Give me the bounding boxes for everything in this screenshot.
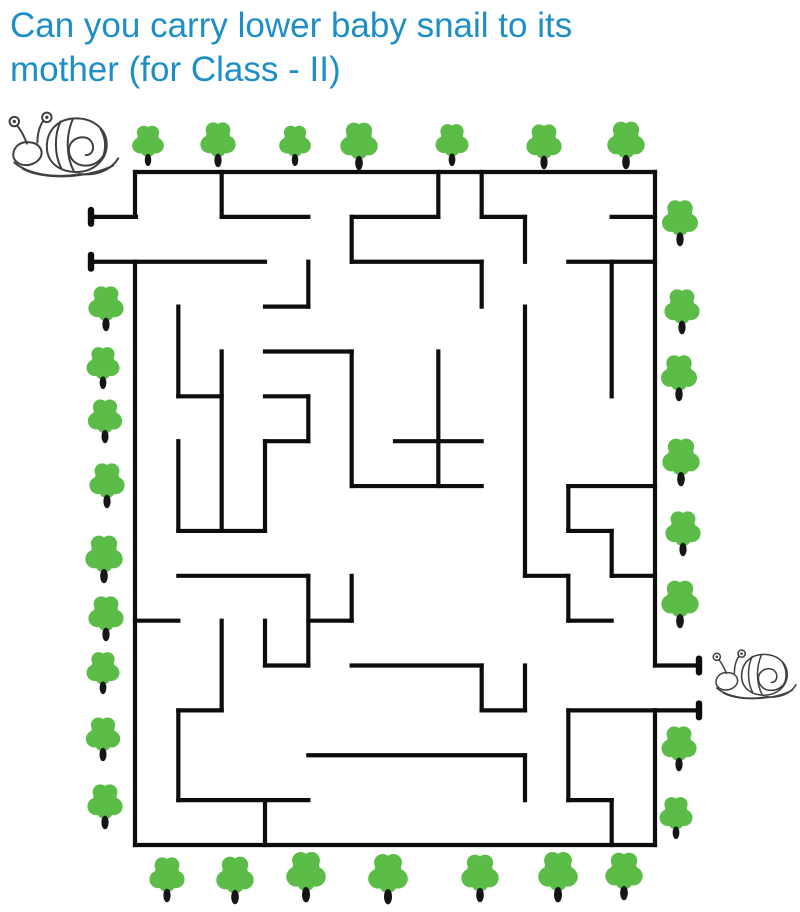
- arm-end-cap-icon: [696, 656, 702, 676]
- tree-icon: [368, 854, 408, 904]
- tree-icon: [607, 122, 644, 170]
- tree-icon: [88, 399, 122, 443]
- mother-snail-icon: [10, 113, 119, 177]
- baby-snail-icon: [713, 650, 796, 699]
- tree-icon: [664, 289, 699, 334]
- maze-exit-arm-bottom: [655, 700, 702, 720]
- tree-icon: [87, 652, 120, 694]
- tree-icon: [661, 355, 697, 401]
- tree-icon: [149, 857, 184, 902]
- maze-entrance-arm-bottom: [88, 252, 265, 272]
- tree-icon: [665, 511, 700, 556]
- tree-icon: [660, 797, 693, 839]
- tree-icon: [86, 717, 120, 761]
- tree-icon: [88, 596, 123, 641]
- tree-icon: [200, 122, 235, 167]
- tree-icon: [661, 581, 698, 629]
- arm-end-cap-icon: [696, 700, 702, 720]
- tree-icon: [662, 439, 699, 487]
- tree-icon: [662, 200, 698, 246]
- tree-icon: [436, 124, 469, 166]
- arm-end-cap-icon: [88, 207, 94, 227]
- tree-icon: [279, 126, 311, 166]
- tree-icon: [526, 124, 561, 169]
- tree-icon: [605, 853, 642, 901]
- arm-end-cap-icon: [88, 252, 94, 272]
- tree-icon: [88, 286, 123, 331]
- tree-icon: [85, 536, 122, 584]
- tree-icon: [286, 852, 326, 902]
- tree-icon: [340, 123, 377, 171]
- tree-icon: [87, 347, 120, 389]
- tree-icon: [661, 726, 696, 771]
- worksheet-page: Can you carry lower baby snail to its mo…: [0, 0, 800, 912]
- tree-icon: [132, 126, 164, 166]
- tree-icon: [461, 855, 498, 903]
- tree-icon: [216, 857, 253, 905]
- tree-icon: [89, 463, 124, 508]
- tree-icon: [87, 784, 122, 829]
- maze-walls: [135, 172, 655, 845]
- maze-illustration: [0, 0, 800, 912]
- tree-icon: [538, 852, 578, 902]
- maze-entrance-arm-top: [88, 207, 136, 227]
- maze-exit-arm-top: [655, 656, 702, 676]
